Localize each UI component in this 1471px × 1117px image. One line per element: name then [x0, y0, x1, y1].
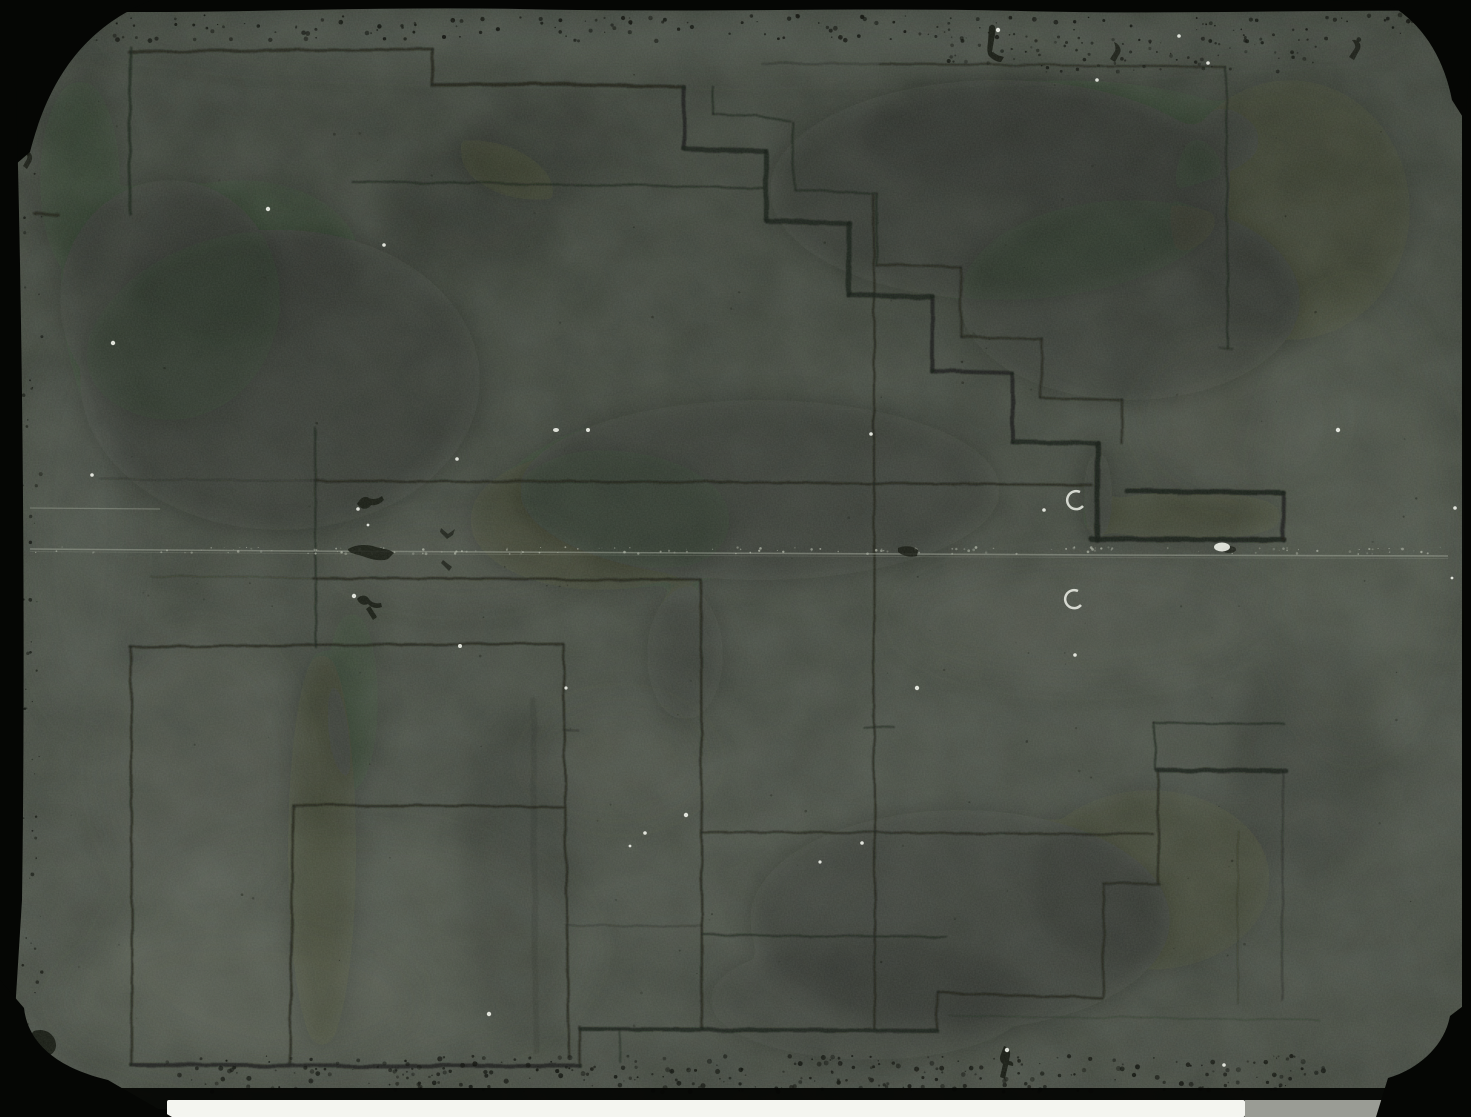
board-grain-texture-light — [12, 5, 1462, 1109]
panel-photo-svg — [0, 0, 1471, 1117]
photographed-panel — [0, 0, 1471, 1117]
